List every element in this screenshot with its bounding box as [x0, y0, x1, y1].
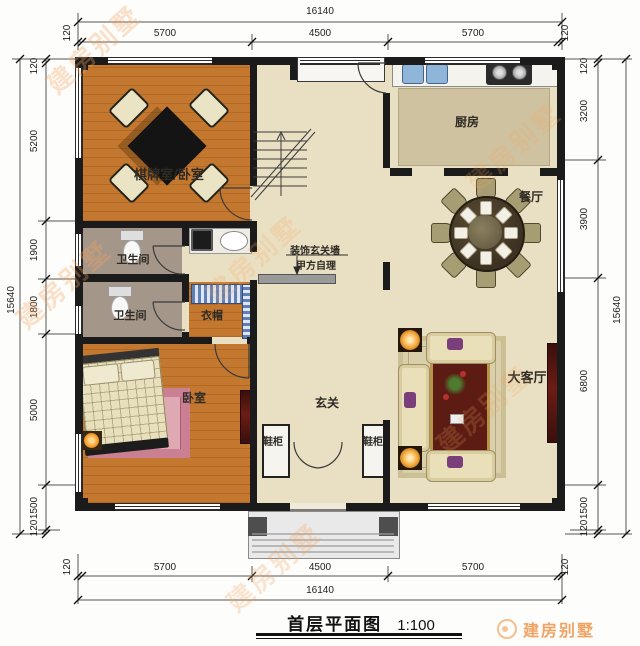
- door-arc: [318, 442, 342, 468]
- dim-left-e2: 120: [29, 503, 41, 553]
- dim-right-s1: 3200: [579, 86, 591, 136]
- door-arc: [294, 442, 318, 468]
- linework-overlay: [0, 0, 640, 646]
- brand-logo: 建房别墅: [497, 616, 637, 642]
- room-label-bath1: 卫生间: [103, 251, 163, 267]
- room-label-kitchen: 厨房: [437, 113, 497, 130]
- dim-left-s2: 1900: [29, 225, 41, 275]
- dim-top-e1: 120: [62, 13, 74, 53]
- room-label-cloak: 衣帽: [190, 307, 234, 323]
- door-arc: [215, 344, 249, 378]
- dim-bottom-s3: 5700: [448, 562, 498, 574]
- dim-right-e2: 120: [579, 503, 591, 553]
- brand-text: 建房别墅: [523, 617, 595, 641]
- dim-left-s1: 5200: [29, 116, 41, 166]
- dim-left-total: 15640: [6, 270, 18, 330]
- room-label-foyer: 玄关: [302, 394, 352, 411]
- room-label-shoe-left: 鞋柜: [251, 433, 295, 448]
- room-label-shoe-right: 鞋柜: [351, 433, 395, 448]
- dim-left-s4: 5000: [29, 385, 41, 435]
- dim-top-e2: 120: [560, 13, 572, 53]
- dim-right-s3: 6800: [579, 356, 591, 406]
- brand-house-icon: [497, 619, 517, 639]
- note-line1: 装饰玄关墙: [284, 242, 346, 257]
- room-label-bedroom: 卧室: [169, 389, 219, 406]
- dim-right-s2: 3900: [579, 194, 591, 244]
- door-arc: [358, 63, 386, 93]
- dim-top-total: 16140: [295, 6, 345, 18]
- title-underline-thin: [256, 638, 462, 639]
- room-label-bath2: 卫生间: [100, 307, 160, 323]
- dim-bottom-total: 16140: [295, 585, 345, 597]
- dim-bottom-s1: 5700: [140, 562, 190, 574]
- dim-left-e1: 120: [29, 41, 41, 91]
- dim-right-e1: 120: [579, 41, 591, 91]
- stairs: [251, 129, 315, 200]
- door-arc: [220, 188, 252, 220]
- dim-left-s3: 1800: [29, 282, 41, 332]
- note-line2: 甲方自理: [287, 257, 345, 272]
- room-label-dining: 餐厅: [501, 188, 561, 205]
- dim-top-s1: 5700: [140, 28, 190, 40]
- drawing-scale: 1:100: [397, 617, 435, 634]
- page-title: 首层平面图: [287, 615, 382, 635]
- dim-top-s2: 4500: [295, 28, 345, 40]
- dim-right-total: 15640: [612, 280, 624, 340]
- brand-house-dot: [502, 626, 508, 632]
- dim-bottom-s2: 4500: [295, 562, 345, 574]
- dim-bottom-e1: 120: [62, 547, 74, 587]
- title-underline-thick: [256, 633, 462, 636]
- room-label-chess: 棋牌室/卧室: [119, 164, 219, 183]
- porch-steps: [252, 534, 394, 552]
- dim-bottom-e2: 120: [560, 547, 572, 587]
- floor-plan-canvas: 16140 120 5700 4500 5700 120 120 5700 45…: [0, 0, 640, 646]
- title-block: 首层平面图 1:100: [256, 610, 466, 635]
- room-label-living: 大客厅: [495, 367, 559, 386]
- dim-top-s3: 5700: [448, 28, 498, 40]
